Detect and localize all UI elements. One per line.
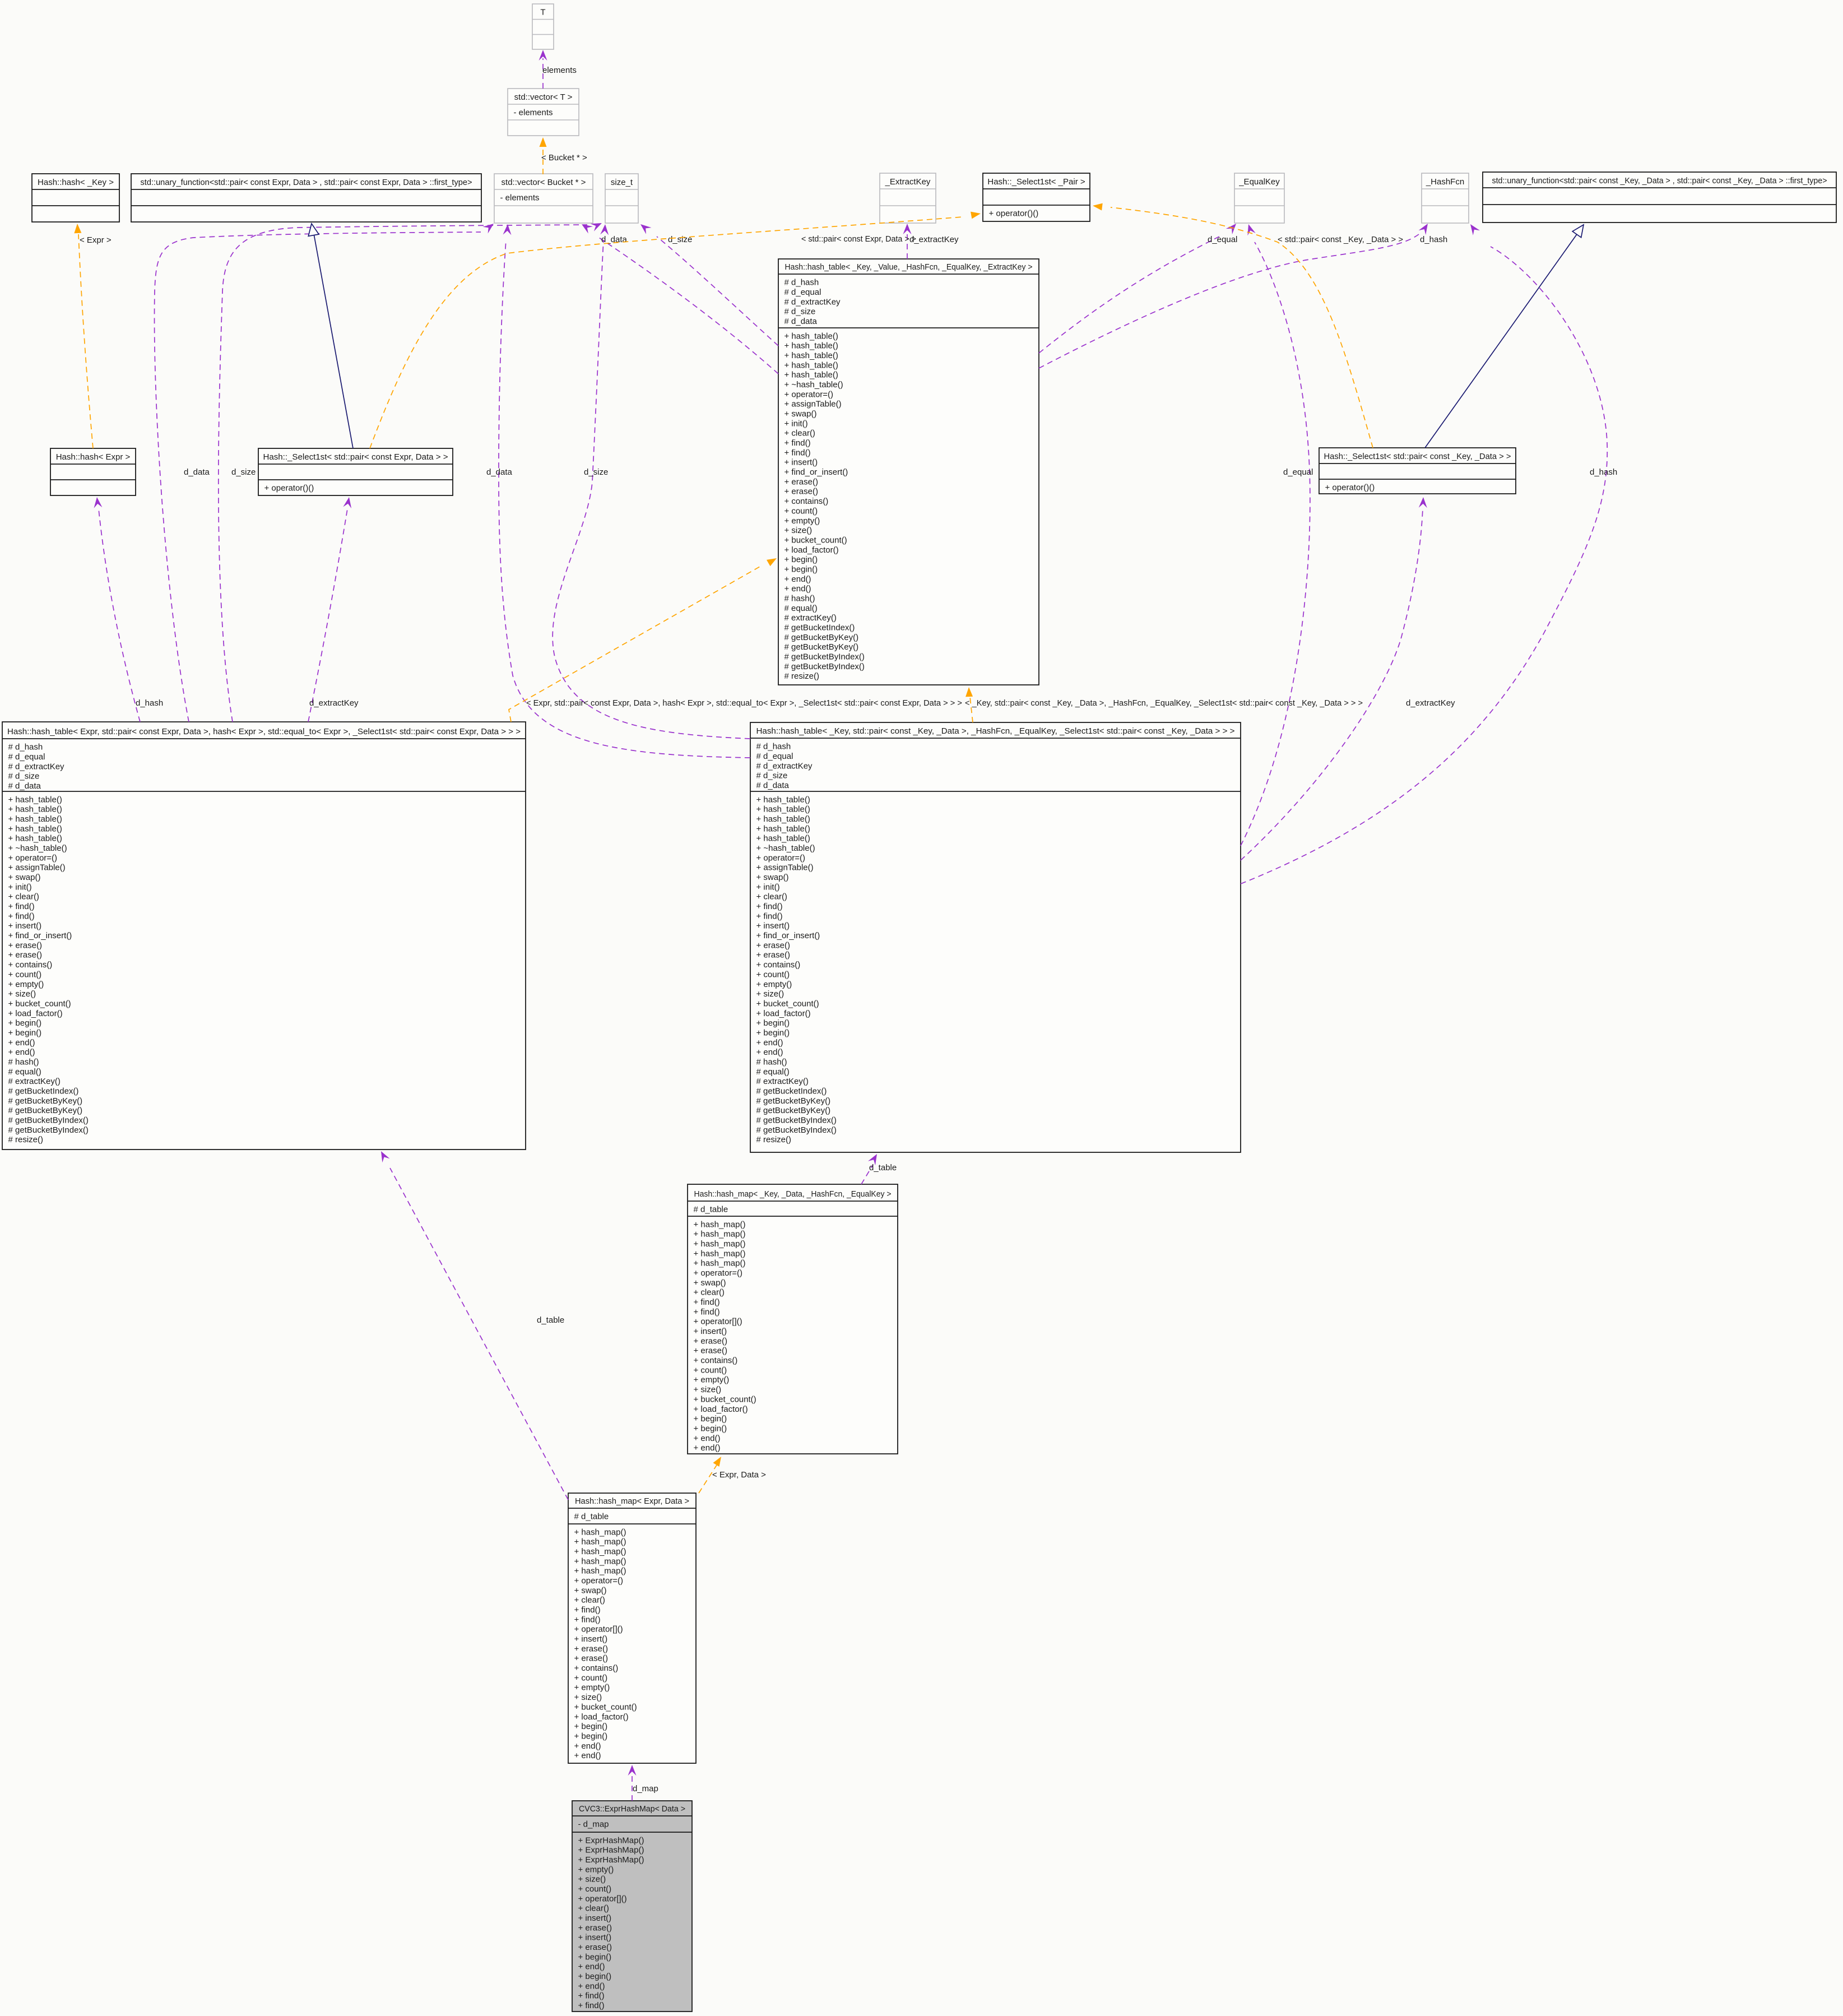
svg-text:+ find(): + find()	[694, 1297, 720, 1307]
svg-text:+ hash_map(): + hash_map()	[574, 1556, 626, 1566]
svg-text:# getBucketByIndex(): # getBucketByIndex()	[8, 1125, 89, 1135]
svg-text:- elements: - elements	[500, 193, 540, 203]
svg-text:+ insert(): + insert()	[578, 1933, 612, 1943]
svg-text:+ end(): + end()	[8, 1038, 35, 1048]
svg-text:+ ~hash_table(): + ~hash_table()	[8, 844, 67, 853]
svg-text:+ insert(): + insert()	[574, 1634, 608, 1644]
svg-text:+ erase(): + erase()	[574, 1644, 608, 1653]
svg-text:+ hash_table(): + hash_table()	[784, 331, 838, 341]
svg-text:+ hash_map(): + hash_map()	[574, 1547, 626, 1556]
svg-text:# d_data: # d_data	[8, 781, 41, 791]
svg-text:+ end(): + end()	[578, 1962, 605, 1972]
svg-text:+ empty(): + empty()	[8, 980, 44, 989]
svg-text:+ init(): + init()	[784, 419, 808, 428]
svg-text:+ operator=(): + operator=()	[574, 1576, 624, 1586]
svg-text:+ end(): + end()	[694, 1443, 721, 1453]
svg-text:+ swap(): + swap()	[756, 873, 789, 882]
svg-text:std::unary_function<std::pair<: std::unary_function<std::pair< const _Ke…	[1492, 176, 1827, 186]
svg-text:+ count(): + count()	[8, 970, 42, 979]
svg-text:+ hash_map(): + hash_map()	[574, 1567, 626, 1576]
svg-text:+ find(): + find()	[574, 1615, 601, 1624]
svg-text:- d_map: - d_map	[578, 1820, 609, 1829]
svg-text:d_hash: d_hash	[1590, 467, 1617, 477]
svg-text:+ bucket_count(): + bucket_count()	[784, 535, 847, 545]
svg-text:+ find(): + find()	[574, 1605, 601, 1615]
svg-text:+ begin(): + begin()	[8, 1028, 42, 1038]
svg-text:# extractKey(): # extractKey()	[784, 613, 837, 623]
svg-text:# d_equal: # d_equal	[8, 752, 45, 762]
svg-text:+ hash_table(): + hash_table()	[8, 814, 62, 824]
svg-text:+ end(): + end()	[574, 1741, 601, 1751]
svg-text:+ contains(): + contains()	[8, 960, 53, 970]
svg-text:+ init(): + init()	[756, 882, 780, 892]
svg-text:+ begin(): + begin()	[578, 1952, 612, 1962]
svg-text:+ hash_table(): + hash_table()	[8, 824, 62, 833]
svg-text:+ begin(): + begin()	[784, 565, 818, 574]
svg-text:+ begin(): + begin()	[694, 1424, 727, 1433]
svg-text:Hash::_Select1st< std::pair< c: Hash::_Select1st< std::pair< const _Key,…	[1324, 452, 1511, 461]
svg-text:+ insert(): + insert()	[784, 458, 818, 467]
svg-text:+ load_factor(): + load_factor()	[694, 1405, 748, 1414]
svg-text:+ hash_map(): + hash_map()	[694, 1239, 746, 1249]
svg-text:+ erase(): + erase()	[574, 1654, 608, 1663]
svg-text:+ ExprHashMap(): + ExprHashMap()	[578, 1855, 644, 1865]
svg-text:+ hash_table(): + hash_table()	[756, 824, 810, 833]
svg-text:size_t: size_t	[611, 178, 633, 187]
svg-text:Hash::hash< _Key >: Hash::hash< _Key >	[38, 178, 114, 187]
svg-text:+ begin(): + begin()	[756, 1028, 790, 1038]
svg-text:+ end(): + end()	[8, 1048, 35, 1057]
svg-text:+ find(): + find()	[784, 448, 811, 457]
svg-text:+ count(): + count()	[578, 1884, 612, 1894]
svg-text:+ begin(): + begin()	[578, 1972, 612, 1981]
svg-text:+ find(): + find()	[578, 2001, 605, 2010]
svg-text:< Expr, Data >: < Expr, Data >	[712, 1470, 766, 1480]
svg-text:std::vector< T >: std::vector< T >	[514, 92, 573, 102]
svg-text:+ ~hash_table(): + ~hash_table()	[756, 844, 815, 853]
svg-text:+ operator()(): + operator()()	[989, 208, 1039, 218]
svg-text:+ size(): + size()	[694, 1385, 722, 1394]
svg-text:# d_data: # d_data	[784, 317, 818, 326]
svg-text:+ erase(): + erase()	[784, 487, 818, 497]
svg-text:< std::pair< const _Key, _Data: < std::pair< const _Key, _Data > >	[1278, 235, 1403, 244]
svg-text:+ end(): + end()	[784, 584, 811, 594]
svg-text:+ clear(): + clear()	[574, 1596, 605, 1605]
svg-text:# getBucketByKey(): # getBucketByKey()	[784, 633, 859, 642]
svg-text:Hash::hash_table< Expr, std::p: Hash::hash_table< Expr, std::pair< const…	[7, 727, 521, 736]
svg-text:# getBucketByKey(): # getBucketByKey()	[756, 1096, 831, 1106]
svg-text:+ empty(): + empty()	[756, 980, 792, 989]
svg-text:+ ExprHashMap(): + ExprHashMap()	[578, 1846, 644, 1855]
svg-text:# d_equal: # d_equal	[784, 288, 821, 297]
svg-text:# getBucketIndex(): # getBucketIndex()	[8, 1087, 79, 1096]
svg-text:+ hash_map(): + hash_map()	[694, 1259, 746, 1268]
svg-text:+ size(): + size()	[574, 1693, 602, 1702]
svg-text:# d_hash: # d_hash	[784, 278, 819, 288]
svg-text:d_size: d_size	[584, 467, 608, 477]
svg-text:Hash::_Select1st< std::pair< c: Hash::_Select1st< std::pair< const Expr,…	[263, 452, 448, 462]
svg-text:Hash::_Select1st< _Pair >: Hash::_Select1st< _Pair >	[987, 177, 1085, 187]
svg-text:+ insert(): + insert()	[578, 1913, 612, 1923]
svg-text:+ find_or_insert(): + find_or_insert()	[756, 931, 820, 940]
svg-text:+ empty(): + empty()	[574, 1683, 610, 1693]
svg-text:std::vector< Bucket * >: std::vector< Bucket * >	[502, 178, 586, 187]
svg-text:d_extractKey: d_extractKey	[1406, 698, 1455, 708]
svg-text:+ erase(): + erase()	[578, 1923, 612, 1932]
svg-text:+ count(): + count()	[756, 970, 790, 979]
svg-text:_HashFcn: _HashFcn	[1426, 177, 1464, 187]
svg-text:+ hash_table(): + hash_table()	[8, 795, 62, 804]
svg-text:# equal(): # equal()	[8, 1067, 41, 1077]
svg-text:< _Key, std::pair< const _Key,: < _Key, std::pair< const _Key, _Data >, …	[965, 698, 1363, 708]
svg-text:+ count(): + count()	[694, 1365, 727, 1375]
svg-text:+ insert(): + insert()	[8, 921, 42, 931]
svg-text:+ end(): + end()	[694, 1434, 721, 1443]
svg-text:# getBucketByIndex(): # getBucketByIndex()	[8, 1116, 89, 1125]
svg-text:+ operator=(): + operator=()	[694, 1268, 743, 1278]
svg-text:+ hash_table(): + hash_table()	[8, 834, 62, 844]
svg-text:+ operator=(): + operator=()	[756, 853, 806, 863]
svg-text:+ swap(): + swap()	[574, 1586, 607, 1595]
svg-text:+ hash_table(): + hash_table()	[784, 360, 838, 370]
svg-text:+ assignTable(): + assignTable()	[8, 863, 66, 873]
svg-text:# resize(): # resize()	[8, 1135, 44, 1144]
svg-text:# d_size: # d_size	[756, 771, 788, 781]
svg-text:+ swap(): + swap()	[694, 1278, 726, 1287]
svg-text:+ operator[](): + operator[]()	[574, 1625, 623, 1634]
svg-text:+ find(): + find()	[784, 438, 811, 448]
svg-text:Hash::hash_map< _Key, _Data, _: Hash::hash_map< _Key, _Data, _HashFcn, _…	[694, 1189, 892, 1199]
svg-text:+ begin(): + begin()	[784, 555, 818, 564]
svg-text:# equal(): # equal()	[756, 1067, 790, 1077]
svg-text:# d_data: # d_data	[756, 781, 790, 790]
svg-text:+ bucket_count(): + bucket_count()	[8, 999, 71, 1008]
svg-text:Hash::hash_table< _Key, _Value: Hash::hash_table< _Key, _Value, _HashFcn…	[785, 262, 1033, 272]
svg-text:+ assignTable(): + assignTable()	[756, 863, 814, 873]
svg-text:# getBucketByIndex(): # getBucketByIndex()	[784, 652, 865, 662]
svg-text:+ find(): + find()	[8, 911, 35, 921]
svg-text:+ hash_table(): + hash_table()	[756, 814, 810, 824]
svg-text:# d_hash: # d_hash	[8, 743, 43, 752]
svg-text:Hash::hash_map< Expr, Data >: Hash::hash_map< Expr, Data >	[575, 1496, 689, 1506]
svg-text:# getBucketByKey(): # getBucketByKey()	[8, 1106, 83, 1115]
svg-text:+ erase(): + erase()	[8, 951, 42, 960]
svg-text:+ size(): + size()	[784, 526, 813, 535]
svg-text:+ ~hash_table(): + ~hash_table()	[784, 380, 843, 390]
svg-text:d_hash: d_hash	[136, 698, 163, 708]
svg-text:+ insert(): + insert()	[694, 1327, 727, 1336]
svg-text:_ExtractKey: _ExtractKey	[885, 177, 931, 187]
svg-text:d_data: d_data	[486, 467, 513, 477]
svg-text:+ clear(): + clear()	[756, 892, 787, 902]
svg-text:+ end(): + end()	[784, 574, 811, 584]
svg-text:+ hash_table(): + hash_table()	[784, 341, 838, 351]
svg-text:elements: elements	[542, 66, 577, 75]
svg-text:+ load_factor(): + load_factor()	[756, 1009, 811, 1018]
svg-text:+ operator()(): + operator()()	[264, 483, 314, 493]
svg-text:# d_extractKey: # d_extractKey	[784, 297, 841, 307]
svg-text:Hash::hash_table< _Key, std::p: Hash::hash_table< _Key, std::pair< const…	[756, 726, 1235, 736]
svg-text:std::unary_function<std::pair<: std::unary_function<std::pair< const Exp…	[141, 178, 472, 187]
svg-text:+ hash_map(): + hash_map()	[694, 1249, 746, 1258]
svg-text:d_table: d_table	[869, 1163, 897, 1172]
svg-text:_EqualKey: _EqualKey	[1238, 177, 1280, 187]
svg-text:# resize(): # resize()	[756, 1135, 792, 1144]
svg-text:# getBucketByKey(): # getBucketByKey()	[756, 1106, 831, 1115]
svg-text:+ ExprHashMap(): + ExprHashMap()	[578, 1836, 644, 1845]
svg-text:+ find(): + find()	[756, 902, 783, 911]
svg-text:< Expr, std::pair< const Expr,: < Expr, std::pair< const Expr, Data >, h…	[526, 698, 962, 708]
svg-text:d_equal: d_equal	[1208, 235, 1237, 244]
svg-text:+ begin(): + begin()	[574, 1722, 608, 1731]
svg-text:+ hash_map(): + hash_map()	[694, 1220, 746, 1229]
svg-text:Hash::hash< Expr >: Hash::hash< Expr >	[56, 452, 131, 462]
svg-text:+ erase(): + erase()	[756, 951, 790, 960]
svg-text:d_extractKey: d_extractKey	[909, 235, 959, 244]
svg-text:< std::pair< const Expr, Data: < std::pair< const Expr, Data > >	[801, 234, 916, 244]
svg-text:# getBucketIndex(): # getBucketIndex()	[756, 1087, 827, 1096]
svg-text:- elements: - elements	[514, 108, 553, 118]
svg-text:+ find_or_insert(): + find_or_insert()	[784, 467, 848, 477]
svg-text:+ empty(): + empty()	[784, 516, 820, 526]
svg-text:+ hash_table(): + hash_table()	[756, 805, 810, 814]
svg-text:+ erase(): + erase()	[694, 1336, 727, 1346]
svg-text:# d_table: # d_table	[694, 1205, 728, 1215]
svg-text:+ hash_table(): + hash_table()	[8, 805, 62, 814]
svg-text:+ operator[](): + operator[]()	[578, 1894, 627, 1903]
svg-text:+ erase(): + erase()	[8, 940, 42, 950]
svg-text:+ find(): + find()	[694, 1307, 720, 1317]
svg-text:+ find_or_insert(): + find_or_insert()	[8, 931, 72, 940]
svg-text:+ assignTable(): + assignTable()	[784, 400, 842, 409]
svg-text:+ hash_table(): + hash_table()	[756, 834, 810, 844]
svg-text:+ empty(): + empty()	[578, 1865, 614, 1874]
svg-text:+ clear(): + clear()	[784, 429, 815, 438]
svg-text:d_map: d_map	[633, 1784, 658, 1793]
svg-text:# d_hash: # d_hash	[756, 742, 791, 752]
svg-text:+ end(): + end()	[578, 1981, 605, 1991]
svg-text:# extractKey(): # extractKey()	[756, 1077, 809, 1086]
svg-text:+ find(): + find()	[8, 902, 35, 911]
svg-text:+ end(): + end()	[756, 1048, 783, 1057]
svg-text:# hash(): # hash()	[756, 1058, 787, 1067]
svg-text:+ find(): + find()	[756, 911, 783, 921]
svg-text:d_data: d_data	[184, 467, 210, 477]
svg-text:# resize(): # resize()	[784, 671, 820, 681]
svg-text:+ load_factor(): + load_factor()	[784, 545, 839, 555]
svg-text:+ erase(): + erase()	[756, 940, 790, 950]
svg-text:< Bucket * >: < Bucket * >	[541, 153, 587, 163]
svg-text:# getBucketByKey(): # getBucketByKey()	[784, 642, 859, 652]
svg-text:+ size(): + size()	[756, 989, 784, 999]
svg-text:# getBucketByKey(): # getBucketByKey()	[8, 1096, 83, 1106]
svg-text:+ empty(): + empty()	[694, 1375, 730, 1385]
svg-text:T: T	[540, 7, 545, 17]
svg-text:+ swap(): + swap()	[784, 409, 817, 419]
svg-text:# getBucketByIndex(): # getBucketByIndex()	[784, 662, 865, 671]
svg-text:+ size(): + size()	[578, 1875, 606, 1884]
svg-text:+ begin(): + begin()	[574, 1731, 608, 1741]
svg-text:+ load_factor(): + load_factor()	[8, 1009, 63, 1018]
svg-text:# extractKey(): # extractKey()	[8, 1077, 61, 1086]
svg-text:+ hash_map(): + hash_map()	[574, 1527, 626, 1537]
svg-text:# equal(): # equal()	[784, 604, 818, 613]
svg-text:d_size: d_size	[231, 467, 256, 477]
svg-text:+ erase(): + erase()	[694, 1346, 727, 1356]
svg-text:# d_size: # d_size	[784, 307, 816, 317]
svg-text:# d_extractKey: # d_extractKey	[8, 762, 65, 771]
svg-text:+ contains(): + contains()	[756, 960, 801, 970]
svg-text:+ operator=(): + operator=()	[784, 390, 834, 399]
svg-text:+ size(): + size()	[8, 989, 36, 999]
svg-text:+ clear(): + clear()	[8, 892, 39, 902]
svg-text:d_equal: d_equal	[1283, 467, 1313, 477]
svg-text:d_extractKey: d_extractKey	[309, 698, 359, 708]
svg-text:+ erase(): + erase()	[784, 477, 818, 486]
svg-text:# d_equal: # d_equal	[756, 752, 793, 761]
svg-text:+ begin(): + begin()	[756, 1018, 790, 1028]
svg-text:+ begin(): + begin()	[694, 1414, 727, 1424]
svg-text:# hash(): # hash()	[784, 594, 815, 604]
svg-text:+ insert(): + insert()	[756, 921, 790, 931]
svg-text:+ hash_table(): + hash_table()	[784, 370, 838, 380]
svg-text:+ operator=(): + operator=()	[8, 853, 58, 863]
svg-text:# getBucketByIndex(): # getBucketByIndex()	[756, 1125, 837, 1135]
svg-text:+ bucket_count(): + bucket_count()	[574, 1702, 637, 1712]
svg-text:+ operator[](): + operator[]()	[694, 1317, 742, 1327]
svg-text:+ find(): + find()	[578, 1991, 605, 2001]
svg-text:# d_table: # d_table	[574, 1512, 609, 1522]
svg-text:+ end(): + end()	[756, 1038, 783, 1048]
svg-text:+ begin(): + begin()	[8, 1018, 42, 1028]
svg-text:+ load_factor(): + load_factor()	[574, 1712, 629, 1722]
svg-text:+ end(): + end()	[574, 1751, 601, 1760]
svg-text:+ clear(): + clear()	[578, 1904, 609, 1913]
svg-text:+ count(): + count()	[784, 506, 818, 516]
svg-text:# getBucketByIndex(): # getBucketByIndex()	[756, 1116, 837, 1125]
svg-text:+ swap(): + swap()	[8, 873, 41, 882]
svg-text:+ count(): + count()	[574, 1673, 608, 1683]
svg-text:+ hash_table(): + hash_table()	[784, 351, 838, 360]
svg-text:+ hash_map(): + hash_map()	[574, 1537, 626, 1547]
svg-text:+ contains(): + contains()	[694, 1356, 738, 1365]
svg-text:# getBucketIndex(): # getBucketIndex()	[784, 623, 855, 633]
svg-text:+ hash_table(): + hash_table()	[756, 795, 810, 804]
svg-text:# d_extractKey: # d_extractKey	[756, 761, 813, 771]
svg-text:< Expr >: < Expr >	[80, 235, 112, 245]
svg-text:+ contains(): + contains()	[784, 497, 829, 506]
svg-text:+ init(): + init()	[8, 882, 32, 892]
svg-text:+ erase(): + erase()	[578, 1943, 612, 1952]
svg-text:+ hash_map(): + hash_map()	[694, 1230, 746, 1239]
svg-text:+ contains(): + contains()	[574, 1663, 619, 1673]
svg-text:d_hash: d_hash	[1420, 235, 1447, 244]
svg-text:+ operator()(): + operator()()	[1325, 483, 1375, 492]
svg-text:d_size: d_size	[668, 235, 692, 244]
svg-text:+ bucket_count(): + bucket_count()	[694, 1394, 756, 1404]
svg-text:+ bucket_count(): + bucket_count()	[756, 999, 819, 1008]
svg-text:CVC3::ExprHashMap< Data >: CVC3::ExprHashMap< Data >	[579, 1804, 685, 1814]
svg-text:# hash(): # hash()	[8, 1058, 39, 1067]
svg-text:# d_size: # d_size	[8, 772, 40, 781]
svg-text:+ clear(): + clear()	[694, 1288, 725, 1297]
svg-text:d_table: d_table	[537, 1315, 564, 1325]
